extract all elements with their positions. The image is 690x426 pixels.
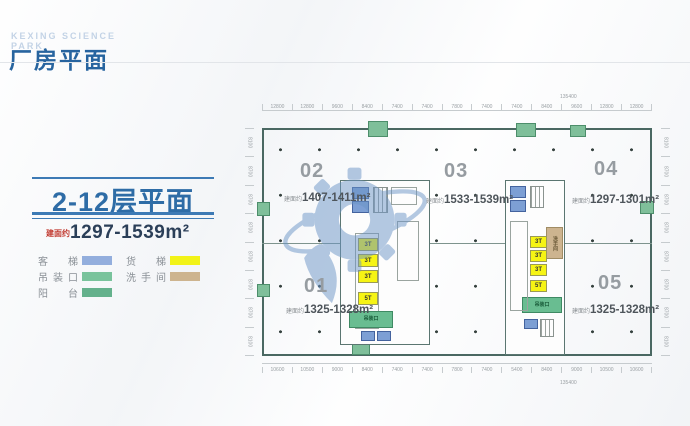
- legend-item-hoist-opening: 吊装口: [38, 268, 126, 284]
- area-range: 建面约1297-1539m²: [46, 222, 190, 244]
- legend-swatch-washroom: [170, 272, 200, 281]
- unit-area-03: 建面约1533-1539m²: [426, 190, 513, 208]
- legend-label: 洗手间: [126, 269, 166, 284]
- dim-label: 8400: [531, 104, 561, 110]
- legend: 客梯 货梯 吊装口 洗手间 阳台: [38, 252, 218, 300]
- dim-label: 12800: [591, 104, 621, 110]
- unit-area-04: 建面约1297-1301m²: [572, 190, 659, 208]
- freight-elevator-3t: 3T: [358, 254, 378, 267]
- dim-label: 8400: [531, 367, 561, 373]
- dim-label: 7400: [382, 367, 412, 373]
- unit-area-prefix: 建面约: [284, 197, 302, 203]
- balcony-block: [368, 121, 388, 137]
- dim-label: 8700: [661, 242, 670, 270]
- dimension-row-top: 1280012800960084007400740078007400740084…: [262, 101, 652, 111]
- freight-elevator-3t: 3T: [530, 236, 547, 248]
- unit-divider-wall: [262, 243, 652, 244]
- park-name-line1: KEXING SCIENCE: [11, 31, 116, 41]
- unit-number-03: 03: [444, 160, 468, 183]
- dim-label: 8700: [245, 298, 254, 326]
- header-divider: [0, 62, 690, 63]
- unit-area-value: 1325-1328m²: [590, 304, 659, 316]
- balcony-block: [257, 284, 270, 297]
- dim-label: 7400: [412, 104, 442, 110]
- legend-swatch-passenger: [82, 256, 112, 265]
- unit-area-05: 建面约1325-1328m²: [572, 300, 659, 318]
- panel-rule-double: [32, 212, 214, 219]
- legend-label: 阳台: [38, 285, 78, 300]
- dim-label: 7800: [442, 104, 472, 110]
- dim-label: 8700: [661, 298, 670, 326]
- legend-label: 吊装口: [38, 269, 78, 284]
- corridor: [397, 221, 419, 281]
- dim-label: 10600: [621, 367, 652, 373]
- page-title: 厂房平面: [9, 41, 109, 75]
- stair-core: [540, 319, 554, 337]
- unit-area-value: 1407-1411m²: [302, 192, 370, 204]
- balcony-block: [570, 125, 586, 137]
- washroom-label: 洗手间: [552, 236, 557, 251]
- dim-label: 8700: [661, 213, 670, 241]
- passenger-elevator-box: [377, 331, 391, 341]
- unit-area-prefix: 建面约: [426, 199, 444, 205]
- dimension-total-bottom: 135400: [560, 380, 577, 386]
- freight-elevator-3t: 3T: [530, 250, 547, 262]
- elevator-lobby: [510, 221, 528, 311]
- dim-label: 12800: [621, 104, 652, 110]
- unit-area-value: 1325-1328m²: [304, 304, 373, 316]
- area-range-value: 1297-1539m²: [70, 222, 190, 243]
- dim-label: 9600: [561, 104, 591, 110]
- balcony-block: [516, 123, 536, 137]
- freight-elevator-3t: 3T: [358, 270, 378, 283]
- legend-label: 货梯: [126, 253, 166, 268]
- dim-label: 8400: [352, 367, 382, 373]
- unit-number-05: 05: [598, 272, 622, 295]
- dim-label: 8100: [245, 327, 254, 356]
- unit-area-prefix: 建面约: [286, 309, 304, 315]
- unit-area-02: 建面约1407-1411m²: [284, 188, 370, 206]
- unit-area-value: 1297-1301m²: [590, 194, 659, 206]
- legend-item-freight-elevator: 货梯: [126, 252, 214, 268]
- dim-label: 8700: [661, 185, 670, 213]
- dim-label: 8700: [245, 270, 254, 298]
- dim-label: 5400: [501, 367, 531, 373]
- dim-label: 8100: [245, 128, 254, 156]
- dim-label: 12800: [262, 104, 292, 110]
- dim-label: 7400: [412, 367, 442, 373]
- legend-item-balcony: 阳台: [38, 284, 126, 300]
- freight-elevator-3t: 3T: [358, 238, 378, 251]
- machine-room: [391, 187, 417, 205]
- passenger-elevator-box: [524, 319, 538, 329]
- dim-label: 7400: [382, 104, 412, 110]
- core-right: 洗手间 3T 3T 3T 5T 吊装口: [505, 180, 565, 355]
- dimension-col-right: 81008700870087008700870087008100: [661, 128, 670, 356]
- dim-label: 8100: [661, 128, 670, 156]
- dimension-total-top: 135400: [560, 94, 577, 100]
- freight-elevator-5t: 5T: [530, 280, 547, 292]
- legend-swatch-hoist: [82, 272, 112, 281]
- dim-label: 10600: [262, 367, 292, 373]
- unit-area-01: 建面约1325-1328m²: [286, 300, 373, 318]
- dim-label: 8700: [245, 213, 254, 241]
- slide-canvas: KEXING SCIENCE PARK 厂房平面 2-12层平面 建面约1297…: [0, 0, 690, 426]
- dim-label: 8700: [661, 156, 670, 184]
- dim-label: 9000: [322, 367, 352, 373]
- dim-label: 8400: [352, 104, 382, 110]
- dim-label: 10500: [292, 367, 322, 373]
- dim-label: 12800: [292, 104, 322, 110]
- dim-label: 10500: [591, 367, 621, 373]
- dim-label: 7800: [442, 367, 472, 373]
- dim-label: 7400: [501, 104, 531, 110]
- area-prefix: 建面约: [46, 229, 70, 238]
- passenger-elevator-box: [361, 331, 375, 341]
- hoist-opening: 吊装口: [522, 297, 562, 313]
- unit-number-04: 04: [594, 158, 618, 181]
- dimension-row-bottom: 1060010500900084007400740078007400540084…: [262, 363, 652, 373]
- dim-label: 9600: [322, 104, 352, 110]
- legend-swatch-balcony: [82, 288, 112, 297]
- legend-item-washroom: 洗手间: [126, 268, 214, 284]
- legend-item-passenger-elevator: 客梯: [38, 252, 126, 268]
- dim-label: 8700: [661, 270, 670, 298]
- unit-number-01: 01: [304, 275, 328, 298]
- freight-elevator-3t: 3T: [530, 264, 547, 276]
- unit-area-prefix: 建面约: [572, 309, 590, 315]
- unit-area-value: 1533-1539m²: [444, 194, 513, 206]
- balcony-block: [257, 202, 270, 216]
- stair-core: [373, 187, 388, 213]
- panel-rule-top: [32, 177, 214, 179]
- stair-core: [530, 186, 544, 208]
- dim-label: 8700: [245, 242, 254, 270]
- dimension-col-left: 81008700870087008700870087008100: [245, 128, 254, 356]
- legend-label: 客梯: [38, 253, 78, 268]
- legend-swatch-freight: [170, 256, 200, 265]
- dim-label: 7400: [471, 367, 501, 373]
- dim-label: 8700: [245, 185, 254, 213]
- washroom-block: 洗手间: [546, 227, 563, 259]
- dim-label: 9000: [561, 367, 591, 373]
- unit-number-02: 02: [300, 160, 324, 183]
- dim-label: 8100: [661, 327, 670, 356]
- unit-area-prefix: 建面约: [572, 199, 590, 205]
- dim-label: 8700: [245, 156, 254, 184]
- dim-label: 7400: [471, 104, 501, 110]
